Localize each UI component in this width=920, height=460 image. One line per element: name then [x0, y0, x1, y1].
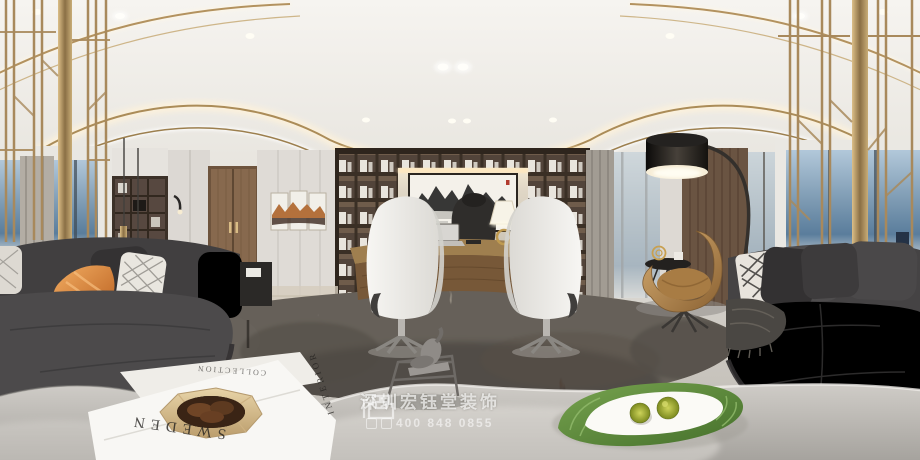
side-table-left	[240, 262, 272, 306]
panorama-office-scene: 深圳宏钰堂装饰 400 848 0855 SWEDEN INTERIOR COL…	[0, 0, 920, 460]
desk-folder	[466, 240, 481, 244]
door-handle-icon	[229, 222, 232, 233]
pillow-patterned-far-left	[0, 246, 22, 294]
triptych-artwork	[271, 191, 326, 230]
seal-mark-icon	[506, 180, 510, 185]
scene-painting	[0, 0, 920, 460]
door-handle-icon	[236, 222, 239, 233]
